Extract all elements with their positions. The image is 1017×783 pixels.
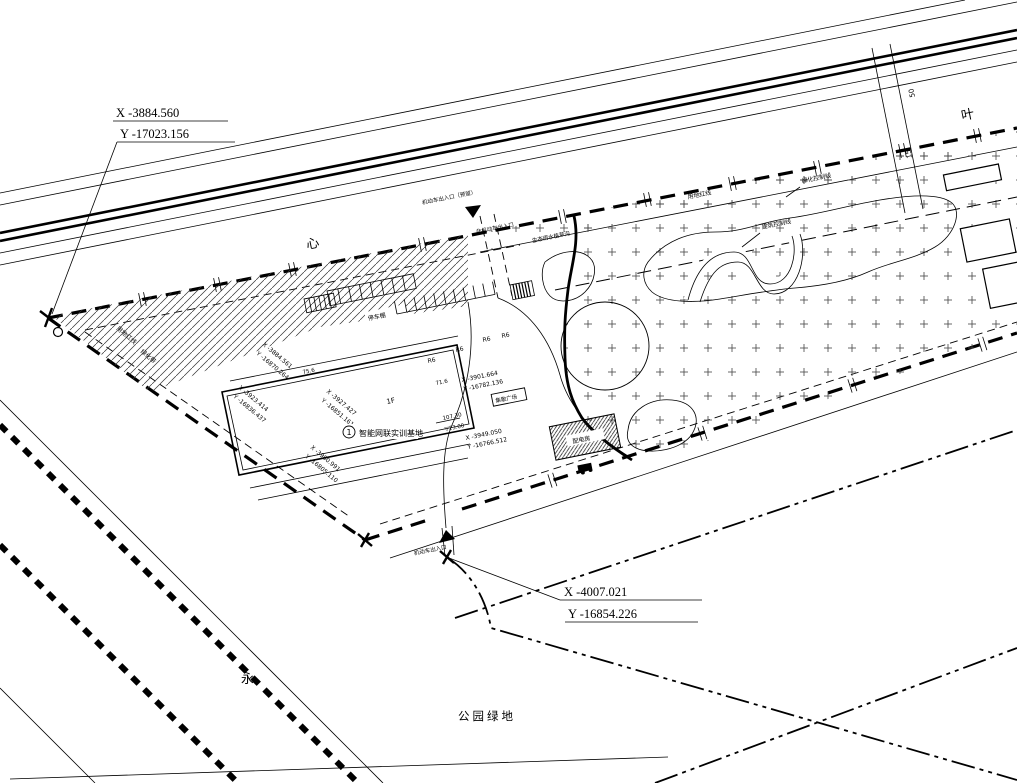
entrance-reserved-label: 机动车出入口（预留） bbox=[421, 188, 477, 207]
callout-y-value: Y -17023.156 bbox=[120, 127, 189, 141]
radius-label: R6 bbox=[455, 345, 464, 353]
callout-x-value: X -4007.021 bbox=[564, 585, 627, 599]
building-dim-b: 75.6 bbox=[302, 368, 316, 376]
entrance-gate-symbol bbox=[577, 463, 593, 476]
callout-top-left: X -3884.560 Y -17023.156 bbox=[52, 106, 235, 314]
site-name-callout: 1 智能网联实训基地 bbox=[340, 424, 423, 439]
site-plan-drawing: 50 15 心 叶 用地红线 用地红线 绿化带 bbox=[0, 0, 1017, 783]
radius-label: R6 bbox=[501, 331, 510, 339]
crosswalk bbox=[510, 281, 535, 300]
park-area: 绿化控制线 建筑控制线 bbox=[542, 131, 1017, 463]
guard-house: 配电房 bbox=[549, 414, 620, 475]
site-bubble-number: 1 bbox=[347, 428, 352, 437]
building-dim-a: 71.6 bbox=[435, 379, 449, 387]
road-name-ye: 叶 bbox=[960, 107, 976, 124]
callout-x-value: X -3884.560 bbox=[116, 106, 179, 120]
callout-y-value: Y -16854.226 bbox=[568, 607, 637, 621]
radius-label: R6 bbox=[427, 356, 436, 364]
elevation-value: 107.30 bbox=[442, 412, 463, 422]
floor-label: 1F bbox=[386, 396, 396, 406]
radius-label: R6 bbox=[482, 335, 491, 343]
road-name-yong: 永 bbox=[241, 672, 254, 687]
road-width-dim: 50 bbox=[907, 88, 917, 98]
road-name-xin: 心 bbox=[305, 236, 321, 253]
site-name-label: 智能网联实训基地 bbox=[359, 428, 423, 438]
park-green-label: 公园绿地 bbox=[458, 709, 516, 723]
site-plan-canvas: 50 15 心 叶 用地红线 用地红线 绿化带 bbox=[0, 0, 1017, 783]
